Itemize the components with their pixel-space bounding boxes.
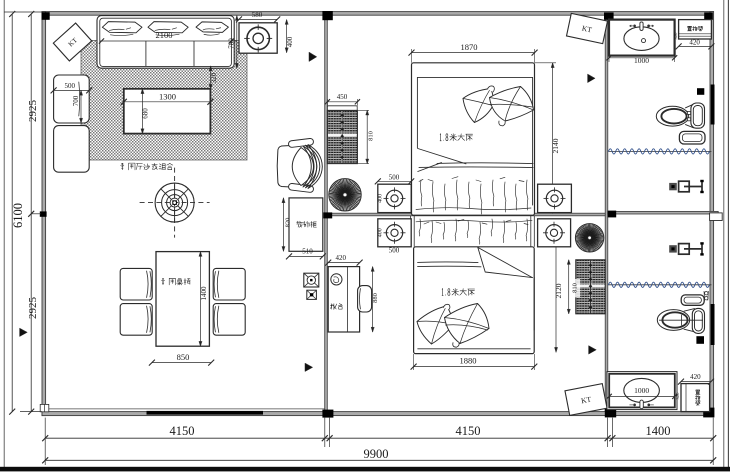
svg-text:810: 810 (368, 131, 375, 141)
svg-text:680: 680 (142, 108, 150, 119)
svg-text:780: 780 (227, 38, 235, 49)
svg-text:810: 810 (572, 283, 579, 293)
svg-text:450: 450 (337, 93, 348, 101)
svg-text:400: 400 (377, 194, 383, 203)
svg-text:4150: 4150 (170, 424, 195, 438)
svg-text:320: 320 (673, 32, 678, 40)
svg-text:500: 500 (65, 82, 76, 90)
svg-text:2120: 2120 (554, 283, 563, 298)
svg-text:1400: 1400 (200, 286, 208, 301)
svg-text:700: 700 (72, 95, 80, 106)
svg-text:420: 420 (689, 39, 700, 47)
svg-text:2100: 2100 (156, 30, 173, 40)
svg-text:320: 320 (675, 392, 680, 400)
svg-text:400: 400 (286, 36, 294, 47)
svg-text:500: 500 (389, 246, 400, 254)
svg-text:2925: 2925 (27, 297, 39, 320)
svg-text:9900: 9900 (364, 447, 389, 461)
svg-text:850: 850 (177, 352, 190, 362)
svg-text:500: 500 (389, 173, 400, 181)
svg-text:1300: 1300 (159, 91, 176, 101)
svg-text:1000: 1000 (634, 386, 649, 395)
svg-text:580: 580 (252, 11, 263, 19)
svg-text:1870: 1870 (461, 42, 478, 52)
svg-text:510: 510 (302, 248, 313, 256)
svg-text:2140: 2140 (551, 138, 560, 153)
svg-text:2925: 2925 (27, 100, 39, 123)
svg-text:420: 420 (690, 373, 701, 381)
svg-text:1880: 1880 (460, 355, 477, 365)
svg-text:6100: 6100 (11, 203, 25, 228)
svg-text:320: 320 (210, 72, 218, 83)
svg-text:820: 820 (285, 218, 292, 228)
svg-text:400: 400 (377, 228, 383, 237)
svg-text:1000: 1000 (634, 56, 649, 65)
svg-text:420: 420 (336, 254, 347, 262)
svg-text:1400: 1400 (646, 424, 671, 438)
svg-text:880: 880 (372, 293, 379, 303)
svg-text:4150: 4150 (456, 424, 481, 438)
